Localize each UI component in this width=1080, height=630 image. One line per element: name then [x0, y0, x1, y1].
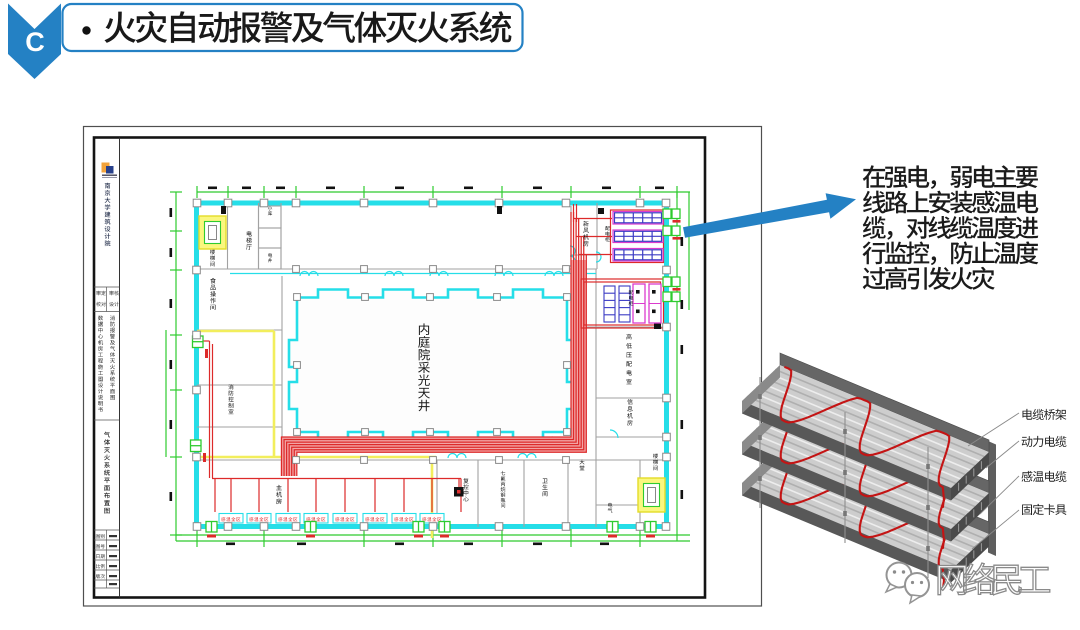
- svg-text:C: C: [25, 27, 45, 57]
